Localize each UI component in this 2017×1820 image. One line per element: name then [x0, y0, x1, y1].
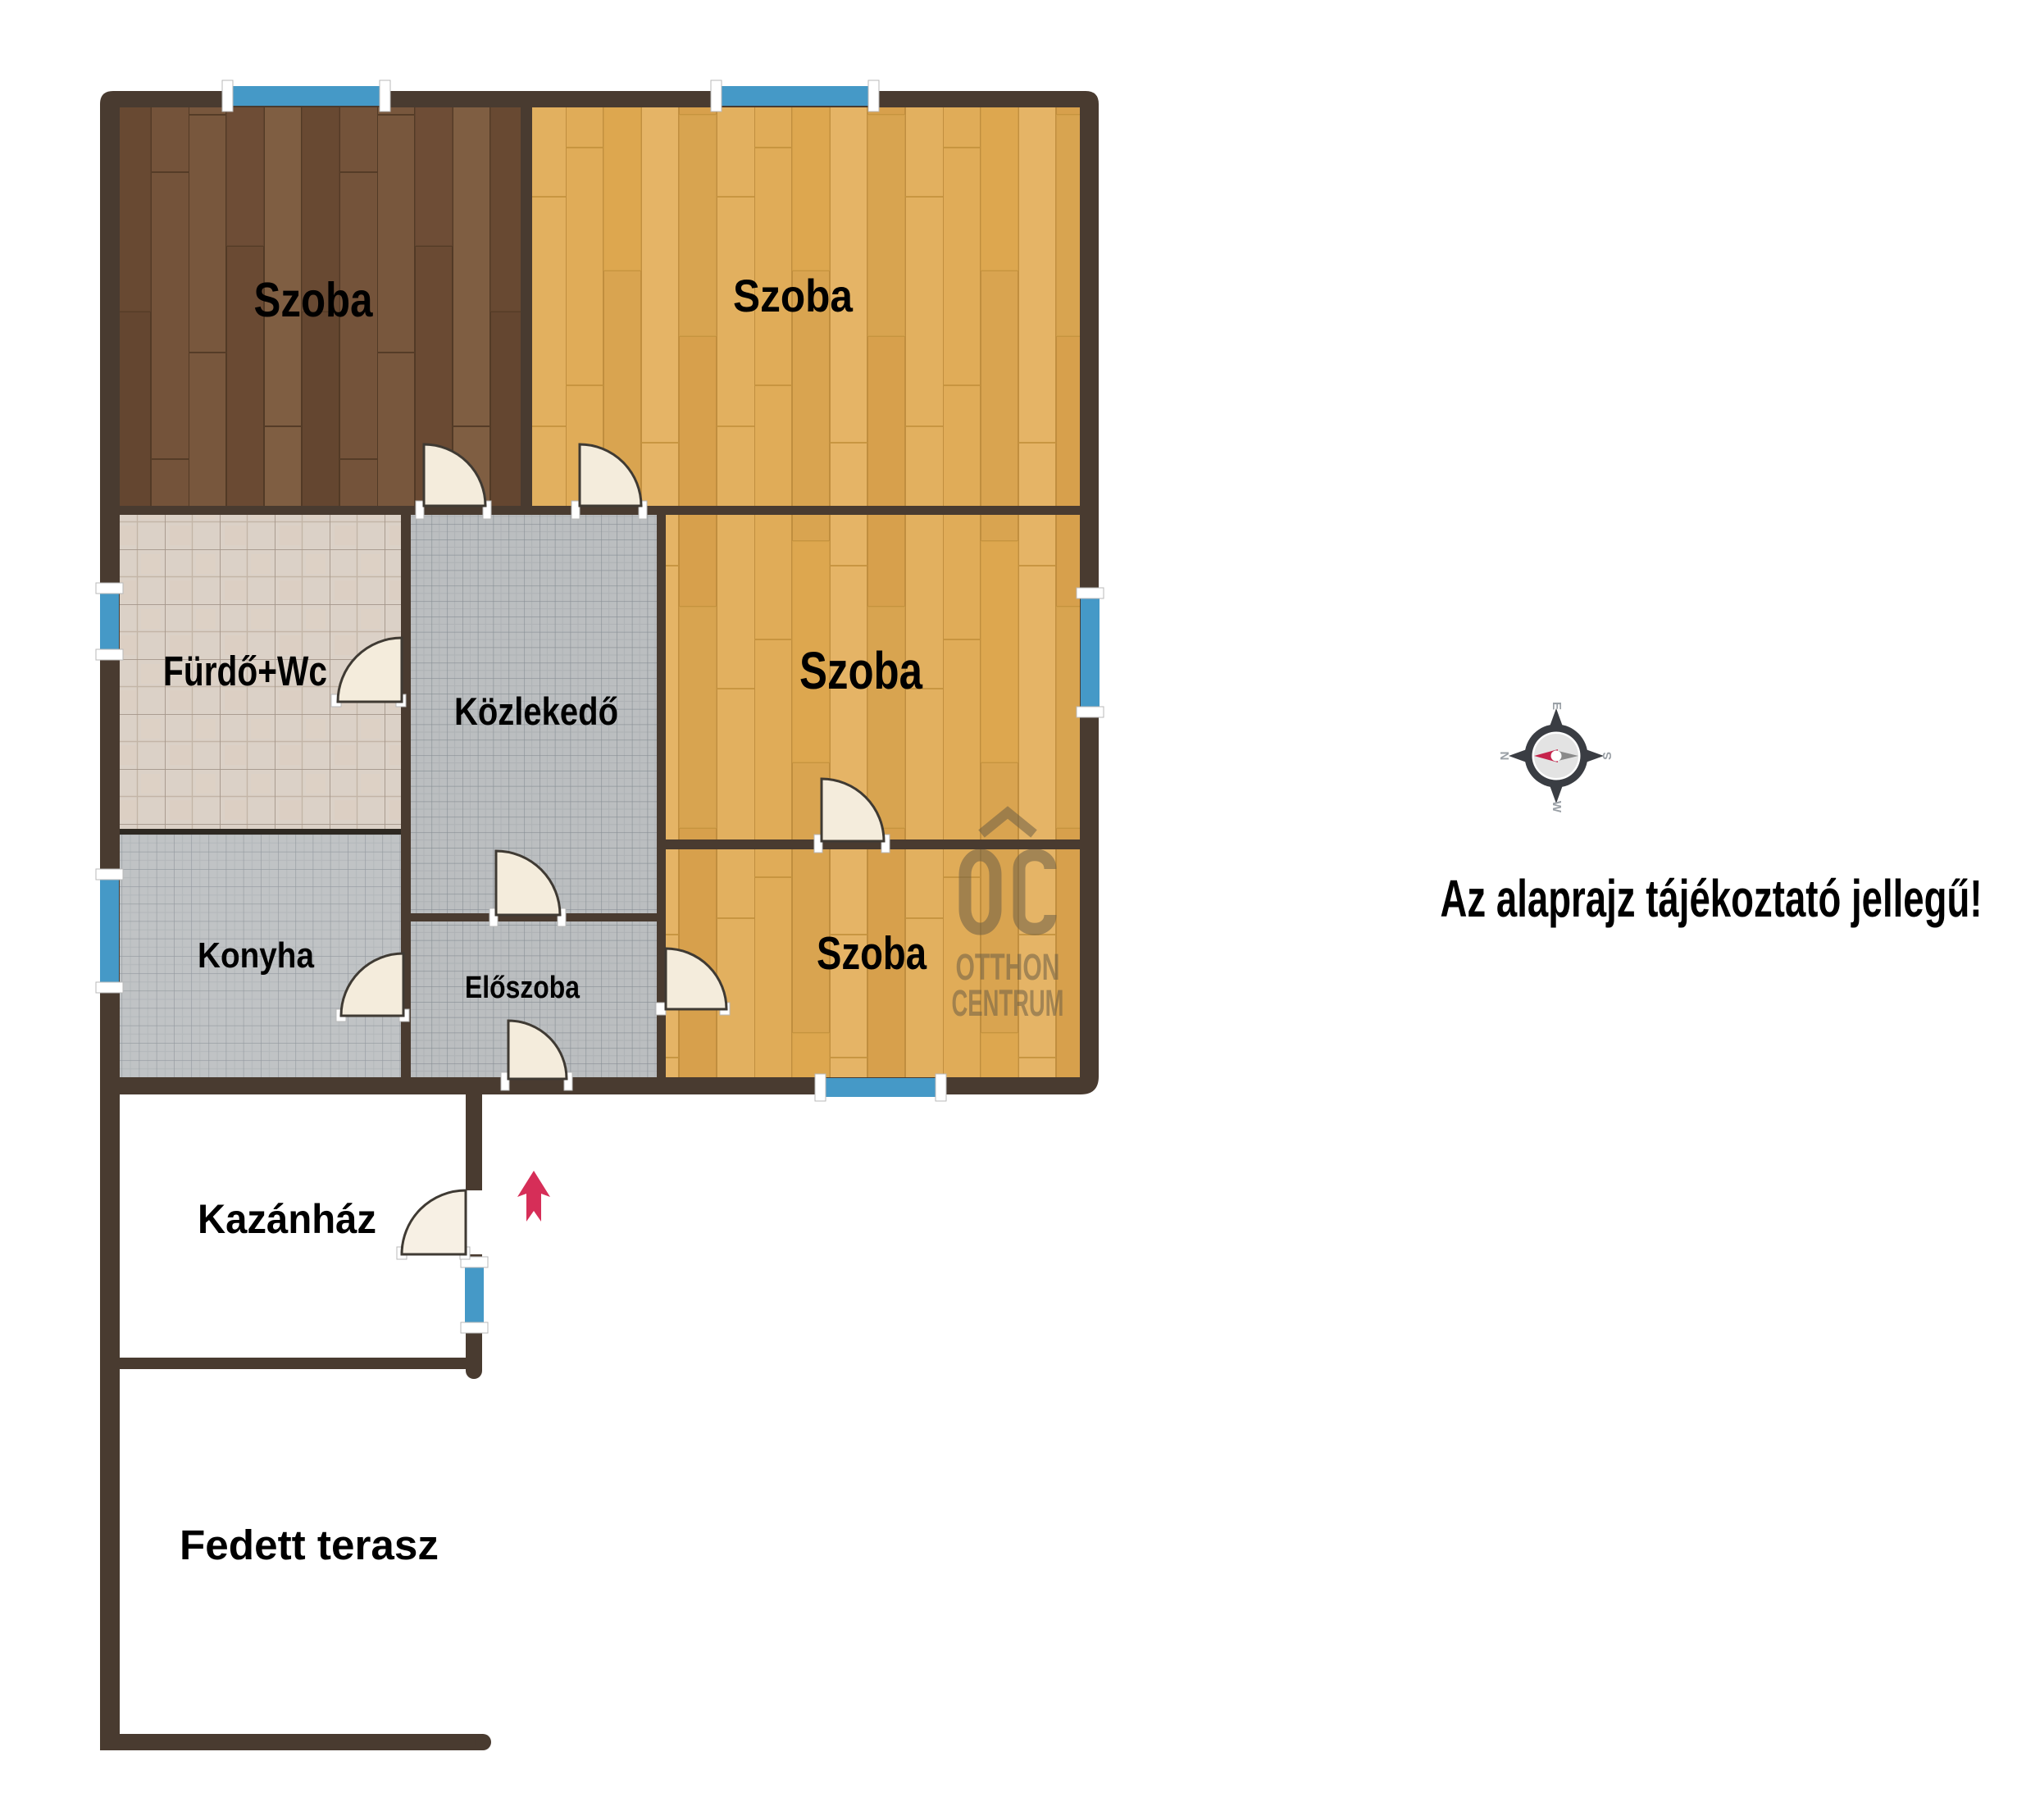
svg-text:Az alaprajz tájékoztató jelleg: Az alaprajz tájékoztató jellegű! — [1441, 869, 1983, 928]
svg-text:Fedett terasz: Fedett terasz — [180, 1522, 439, 1568]
svg-text:W: W — [1550, 801, 1564, 813]
svg-text:Konyha: Konyha — [198, 935, 314, 976]
svg-text:Előszoba: Előszoba — [465, 971, 581, 1005]
svg-text:Fürdő+Wc: Fürdő+Wc — [163, 648, 327, 694]
svg-text:N: N — [1498, 752, 1512, 761]
svg-text:S: S — [1600, 752, 1614, 760]
svg-text:Szoba: Szoba — [817, 927, 927, 980]
svg-text:Kazánház: Kazánház — [198, 1196, 376, 1242]
svg-text:Szoba: Szoba — [799, 641, 922, 700]
svg-text:Szoba: Szoba — [254, 273, 374, 327]
svg-text:Szoba: Szoba — [733, 270, 854, 321]
svg-text:CENTRUM: CENTRUM — [952, 982, 1064, 1024]
svg-text:E: E — [1550, 702, 1564, 710]
svg-text:Közlekedő: Közlekedő — [454, 689, 618, 733]
